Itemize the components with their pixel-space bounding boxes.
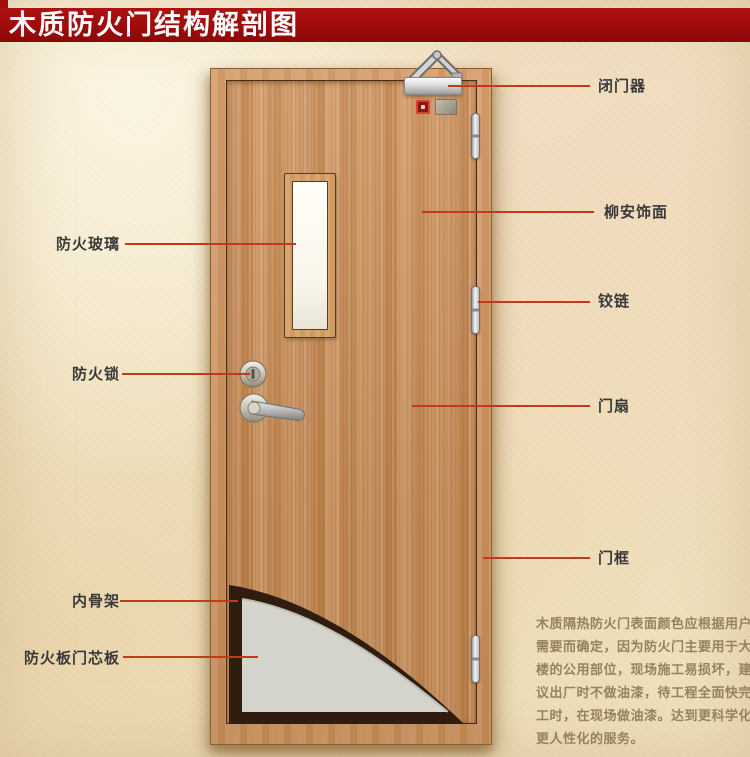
note-line: 需要而确定，因为防火门主要用于大 — [536, 635, 742, 658]
note-line: 工时，在现场做油漆。达到更科学化 — [536, 704, 742, 727]
callout-inner-skeleton: 内骨架 — [0, 593, 120, 611]
note-line: 更人性化的服务。 — [536, 727, 742, 750]
callout-hinge: 铰链 — [598, 293, 630, 311]
callout-door-frame: 门框 — [598, 550, 630, 568]
cutaway-section — [226, 571, 477, 724]
diagram-canvas: 木质防火门结构解剖图 — [0, 0, 750, 757]
leader-door-frame — [483, 557, 590, 559]
leader-fire-board-core — [123, 656, 258, 658]
hinge-middle — [471, 286, 480, 334]
callout-fire-lock: 防火锁 — [0, 366, 120, 384]
fire-glass-window — [284, 173, 336, 338]
callout-fire-glass: 防火玻璃 — [0, 236, 120, 254]
strike-plate — [435, 99, 457, 115]
title-banner: 木质防火门结构解剖图 — [0, 8, 750, 42]
leader-hinge — [478, 301, 590, 303]
glass-pane — [292, 181, 328, 330]
page-title: 木质防火门结构解剖图 — [0, 8, 299, 42]
alarm-dot — [421, 105, 425, 109]
callout-door-closer: 闭门器 — [598, 78, 646, 96]
lockset — [230, 351, 325, 431]
leader-door-closer — [448, 85, 590, 87]
leader-fire-lock — [122, 373, 250, 375]
hinge-top — [471, 113, 480, 159]
alarm-indicator — [416, 100, 430, 114]
callout-lauan-veneer: 柳安饰面 — [604, 204, 668, 222]
leader-lauan-veneer — [422, 211, 594, 213]
fire-board-core-panel — [242, 599, 448, 712]
leader-inner-skeleton — [120, 600, 238, 602]
note-line: 木质隔热防火门表面颜色应根据用户 — [536, 612, 742, 635]
product-note: 木质隔热防火门表面颜色应根据用户 需要而确定，因为防火门主要用于大 楼的公用部位… — [536, 612, 742, 750]
note-line: 议出厂时不做油漆，待工程全面快完 — [536, 681, 742, 704]
corner-mark — [0, 0, 8, 8]
leader-fire-glass — [125, 243, 296, 245]
callout-fire-board-core: 防火板门芯板 — [0, 650, 120, 668]
callout-door-leaf: 门扇 — [598, 398, 630, 416]
note-line: 楼的公用部位，现场施工易损坏，建 — [536, 658, 742, 681]
leader-door-leaf — [412, 405, 590, 407]
